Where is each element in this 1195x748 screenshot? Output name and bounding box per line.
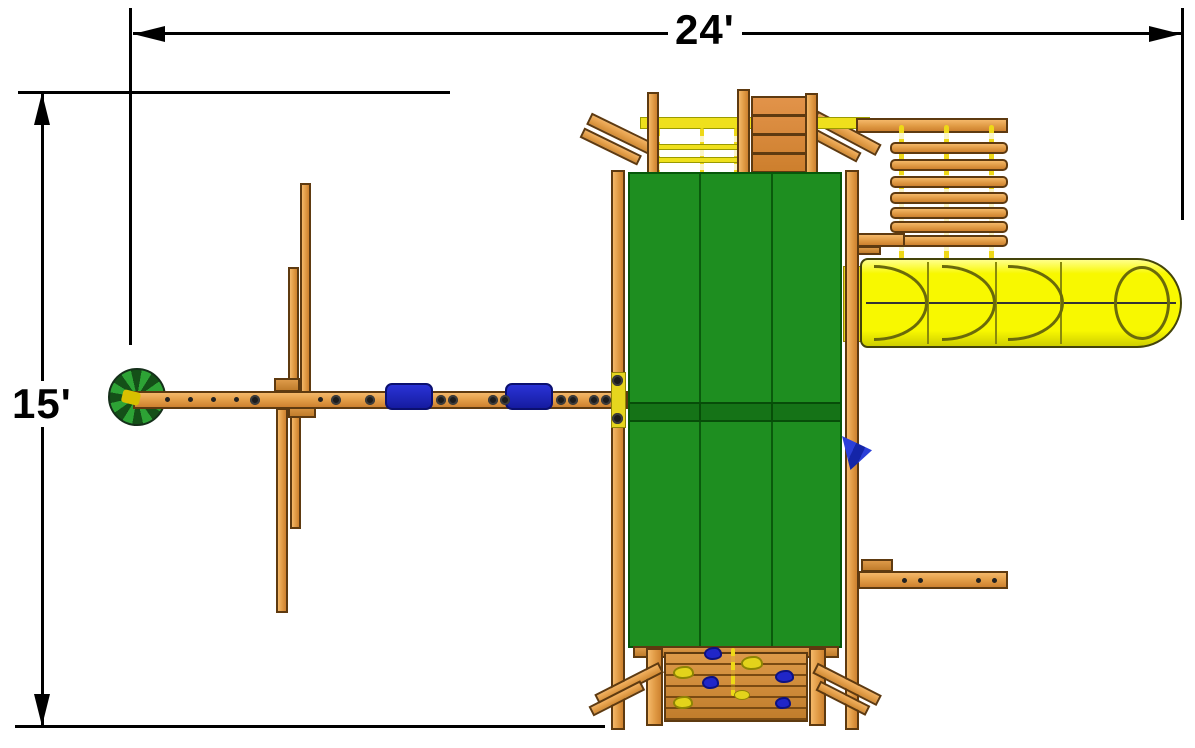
- bolt: [188, 397, 193, 402]
- playset-plan-diagram: 24' 15': [0, 0, 1195, 748]
- arrowhead-down-icon: [34, 694, 50, 726]
- bolt: [234, 397, 239, 402]
- rope-ladder-rung: [658, 144, 738, 150]
- climbing-hold: [673, 666, 694, 679]
- dimension-label-24ft: 24': [668, 7, 742, 53]
- monkey-bar-rung: [890, 142, 1008, 154]
- bolt: [318, 397, 323, 402]
- bolt: [902, 578, 907, 583]
- bolt: [568, 395, 578, 405]
- rock-wall-panel: [664, 652, 808, 722]
- climbing-hold: [775, 670, 794, 683]
- bolt: [976, 578, 981, 583]
- monkey-bar-rung: [890, 192, 1008, 204]
- bolt: [612, 375, 623, 386]
- monkey-bar-rung: [890, 207, 1008, 219]
- climbing-ramp: [751, 96, 809, 173]
- arrowhead-left-icon: [133, 26, 165, 42]
- bolt: [250, 395, 260, 405]
- monkey-bar-rung: [890, 235, 1008, 247]
- extension-line-top: [18, 91, 450, 94]
- climbing-hold: [704, 647, 722, 660]
- belt-swing-seat: [385, 383, 433, 410]
- bolt: [436, 395, 446, 405]
- monkey-bar-rung: [890, 159, 1008, 171]
- belt-swing-seat: [505, 383, 553, 410]
- bolt: [918, 578, 923, 583]
- a-frame-post: [300, 183, 311, 393]
- extension-line-bottom: [15, 725, 605, 728]
- extension-line-left: [129, 8, 132, 345]
- tube-slide: [860, 258, 1182, 348]
- rope-ladder-rung: [658, 157, 738, 163]
- climbing-hold: [673, 696, 693, 709]
- bolt: [165, 397, 170, 402]
- swing-beam: [133, 391, 628, 409]
- bolt: [589, 395, 599, 405]
- dimension-label-15ft: 15': [5, 381, 79, 427]
- slide-section-arc: [1008, 265, 1064, 341]
- bolt: [488, 395, 498, 405]
- fort-left-rail: [611, 170, 625, 730]
- monkey-bar-top-beam: [856, 118, 1008, 133]
- a-frame-block: [274, 378, 300, 392]
- side-beam: [858, 571, 1008, 589]
- a-frame-post: [290, 408, 301, 529]
- tower-canopy: [628, 172, 842, 648]
- slide-section-arc: [942, 265, 996, 341]
- climbing-hold: [741, 656, 763, 670]
- fort-post: [737, 89, 750, 174]
- dimension-line-24ft: [133, 32, 1181, 35]
- extension-line-right: [1181, 8, 1184, 220]
- rock-wall-post: [646, 648, 663, 726]
- bolt: [331, 395, 341, 405]
- arrowhead-up-icon: [34, 93, 50, 125]
- bolt: [992, 578, 997, 583]
- climbing-rope-end: [734, 690, 750, 700]
- monkey-bar-rung: [890, 221, 1008, 233]
- climbing-hold: [702, 676, 719, 689]
- bolt: [500, 395, 510, 405]
- bolt: [211, 397, 216, 402]
- arrowhead-right-icon: [1149, 26, 1181, 42]
- bolt: [448, 395, 458, 405]
- slide-end-cap: [1114, 266, 1170, 340]
- canopy-ridge: [630, 402, 840, 422]
- bolt: [612, 413, 623, 424]
- a-frame-post: [288, 267, 299, 393]
- rope-ladder-rope: [700, 128, 704, 174]
- climbing-rope: [731, 648, 735, 696]
- a-frame-post: [276, 408, 288, 613]
- bolt: [556, 395, 566, 405]
- bolt: [601, 395, 611, 405]
- fort-post: [647, 92, 659, 174]
- fort-post: [805, 93, 818, 174]
- bolt: [365, 395, 375, 405]
- slide-section-arc: [874, 265, 928, 341]
- monkey-bar-rung: [890, 176, 1008, 188]
- climbing-hold: [775, 697, 791, 709]
